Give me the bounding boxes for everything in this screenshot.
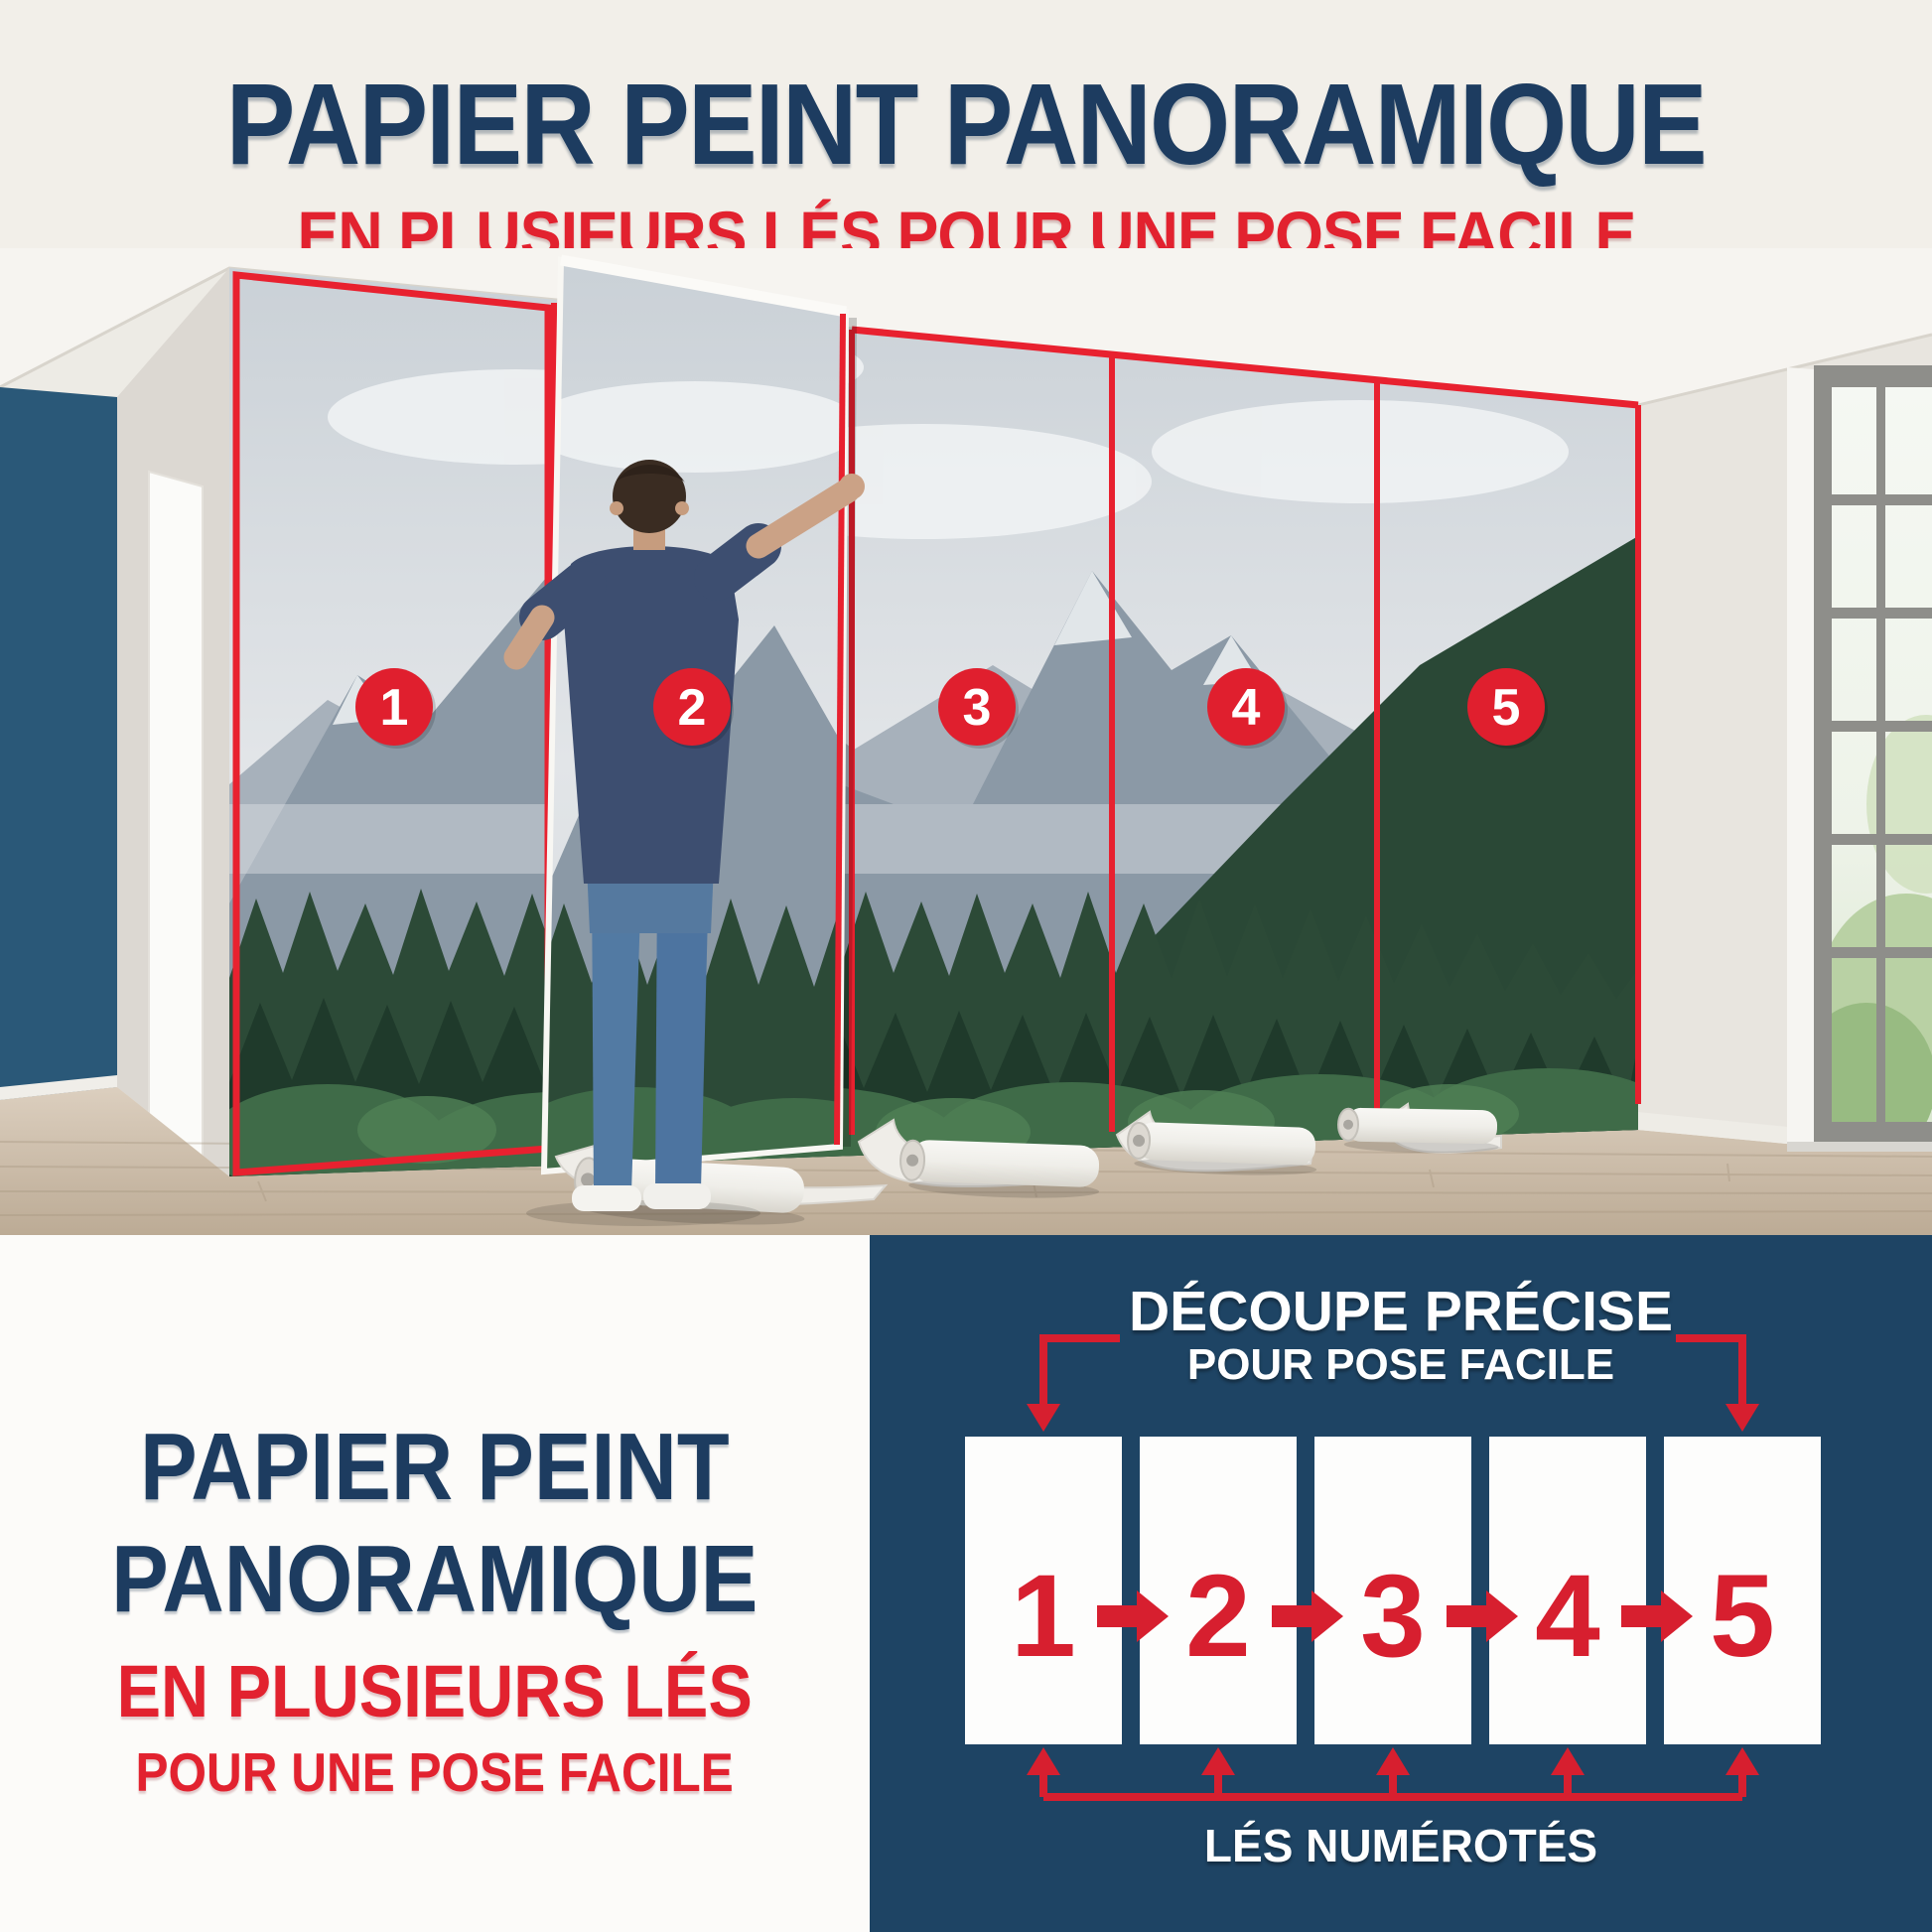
installation-photo: 1 2 3 4 5	[0, 248, 1932, 1235]
man-right-hand	[839, 474, 865, 499]
roll-3	[1127, 1122, 1318, 1178]
strip-badge-4-number: 4	[1232, 679, 1261, 737]
window	[1787, 365, 1932, 1162]
man-right-shoe	[643, 1183, 711, 1209]
window-jamb	[1787, 367, 1814, 1145]
roll-4	[1338, 1108, 1500, 1155]
bl-title-line1-text: PAPIER PEINT	[140, 1420, 730, 1515]
diagram-strip-5-number: 5	[1710, 1549, 1775, 1684]
diagram-strip-2-number: 2	[1185, 1549, 1251, 1684]
diagram-strip-1-number: 1	[1011, 1549, 1076, 1684]
diagram-strip-3: 3	[1314, 1437, 1471, 1744]
diagram-heading-line1: DÉCOUPE PRÉCISE	[870, 1279, 1932, 1344]
navy-accent-wall	[0, 387, 117, 1100]
window-sill	[1787, 1142, 1932, 1152]
bl-title-line2-text: PANORAMIQUE	[111, 1532, 758, 1627]
product-infographic: PAPIER PEINT PANORAMIQUE EN PLUSIEURS LÉ…	[0, 0, 1932, 1932]
man-left-shoe	[572, 1185, 641, 1211]
strip-badge-3-number: 3	[963, 679, 992, 737]
numbered-strips-diagram: DÉCOUPE PRÉCISE POUR POSE FACILE 1 2 3 4…	[870, 1235, 1932, 1932]
page-title: PAPIER PEINT PANORAMIQUE	[0, 58, 1932, 191]
diagram-strip-3-number: 3	[1360, 1549, 1426, 1684]
bl-subtitle-line1: EN PLUSIEURS LÉS	[0, 1655, 870, 1728]
strip-badge-2-number: 2	[678, 679, 707, 737]
doorway	[149, 472, 203, 1164]
diagram-footer-label: LÉS NUMÉROTÉS	[904, 1819, 1897, 1872]
bl-title-line2: PANORAMIQUE	[0, 1532, 870, 1627]
bl-title-line1: PAPIER PEINT	[0, 1420, 870, 1515]
bl-subtitle-line1-text: EN PLUSIEURS LÉS	[117, 1655, 753, 1728]
man-right-ear	[675, 501, 689, 515]
bl-subtitle-line2-text: POUR UNE POSE FACILE	[136, 1745, 734, 1800]
diagram-strip-5: 5	[1664, 1437, 1821, 1744]
diagram-strip-1: 1	[965, 1437, 1122, 1744]
man-shadow	[526, 1200, 760, 1226]
strip-badge-1-number: 1	[380, 679, 409, 737]
bottom-left-panel: PAPIER PEINT PANORAMIQUE EN PLUSIEURS LÉ…	[0, 1235, 870, 1932]
bottom-bracket-arrowheads	[1027, 1747, 1759, 1775]
bl-subtitle-line2: POUR UNE POSE FACILE	[0, 1745, 870, 1800]
top-bracket-arrowheads	[1027, 1404, 1759, 1432]
bottom-bracket-lines	[1043, 1769, 1742, 1797]
diagram-heading-line2: POUR POSE FACILE	[870, 1340, 1932, 1390]
header: PAPIER PEINT PANORAMIQUE EN PLUSIEURS LÉ…	[0, 0, 1932, 248]
strip-badge-5-number: 5	[1492, 679, 1521, 737]
man-left-ear	[610, 501, 623, 515]
diagram-strip-2: 2	[1140, 1437, 1297, 1744]
diagram-strip-4-number: 4	[1535, 1549, 1600, 1684]
diagram-strip-4: 4	[1489, 1437, 1646, 1744]
room-scene: 1 2 3 4 5	[0, 248, 1932, 1235]
page-title-text: PAPIER PEINT PANORAMIQUE	[226, 58, 1706, 191]
